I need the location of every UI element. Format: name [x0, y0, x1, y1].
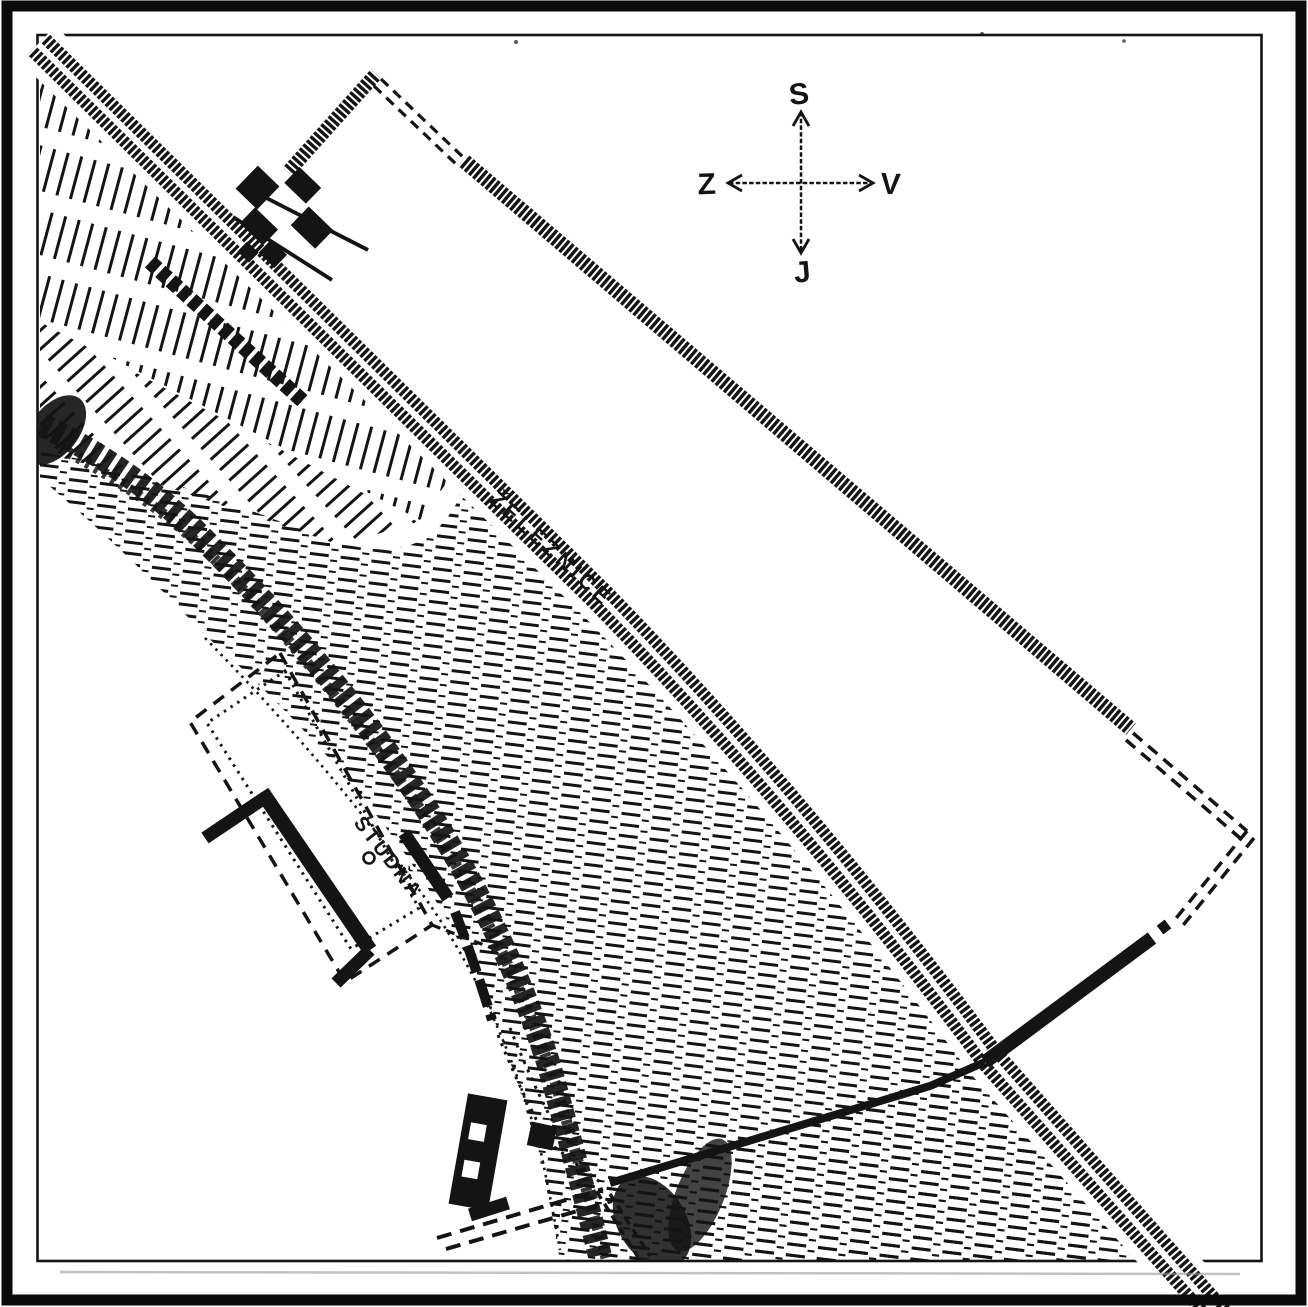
- site-plan-map: ŽELEZNICE: [0, 0, 1308, 1307]
- compass-label-north: S: [787, 77, 810, 112]
- south-building-window: [468, 1122, 487, 1142]
- compass-label-west: Z: [697, 168, 716, 202]
- ink-speck: [980, 32, 984, 36]
- field-road-cap: [1160, 924, 1168, 930]
- compass-label-south: J: [792, 255, 812, 289]
- south-building-window: [461, 1160, 480, 1180]
- scanned-site-plan-page: ŽELEZNICE: [0, 0, 1308, 1307]
- ink-speck: [514, 40, 518, 44]
- compass-label-east: V: [880, 168, 902, 202]
- ink-speck: [1122, 39, 1126, 43]
